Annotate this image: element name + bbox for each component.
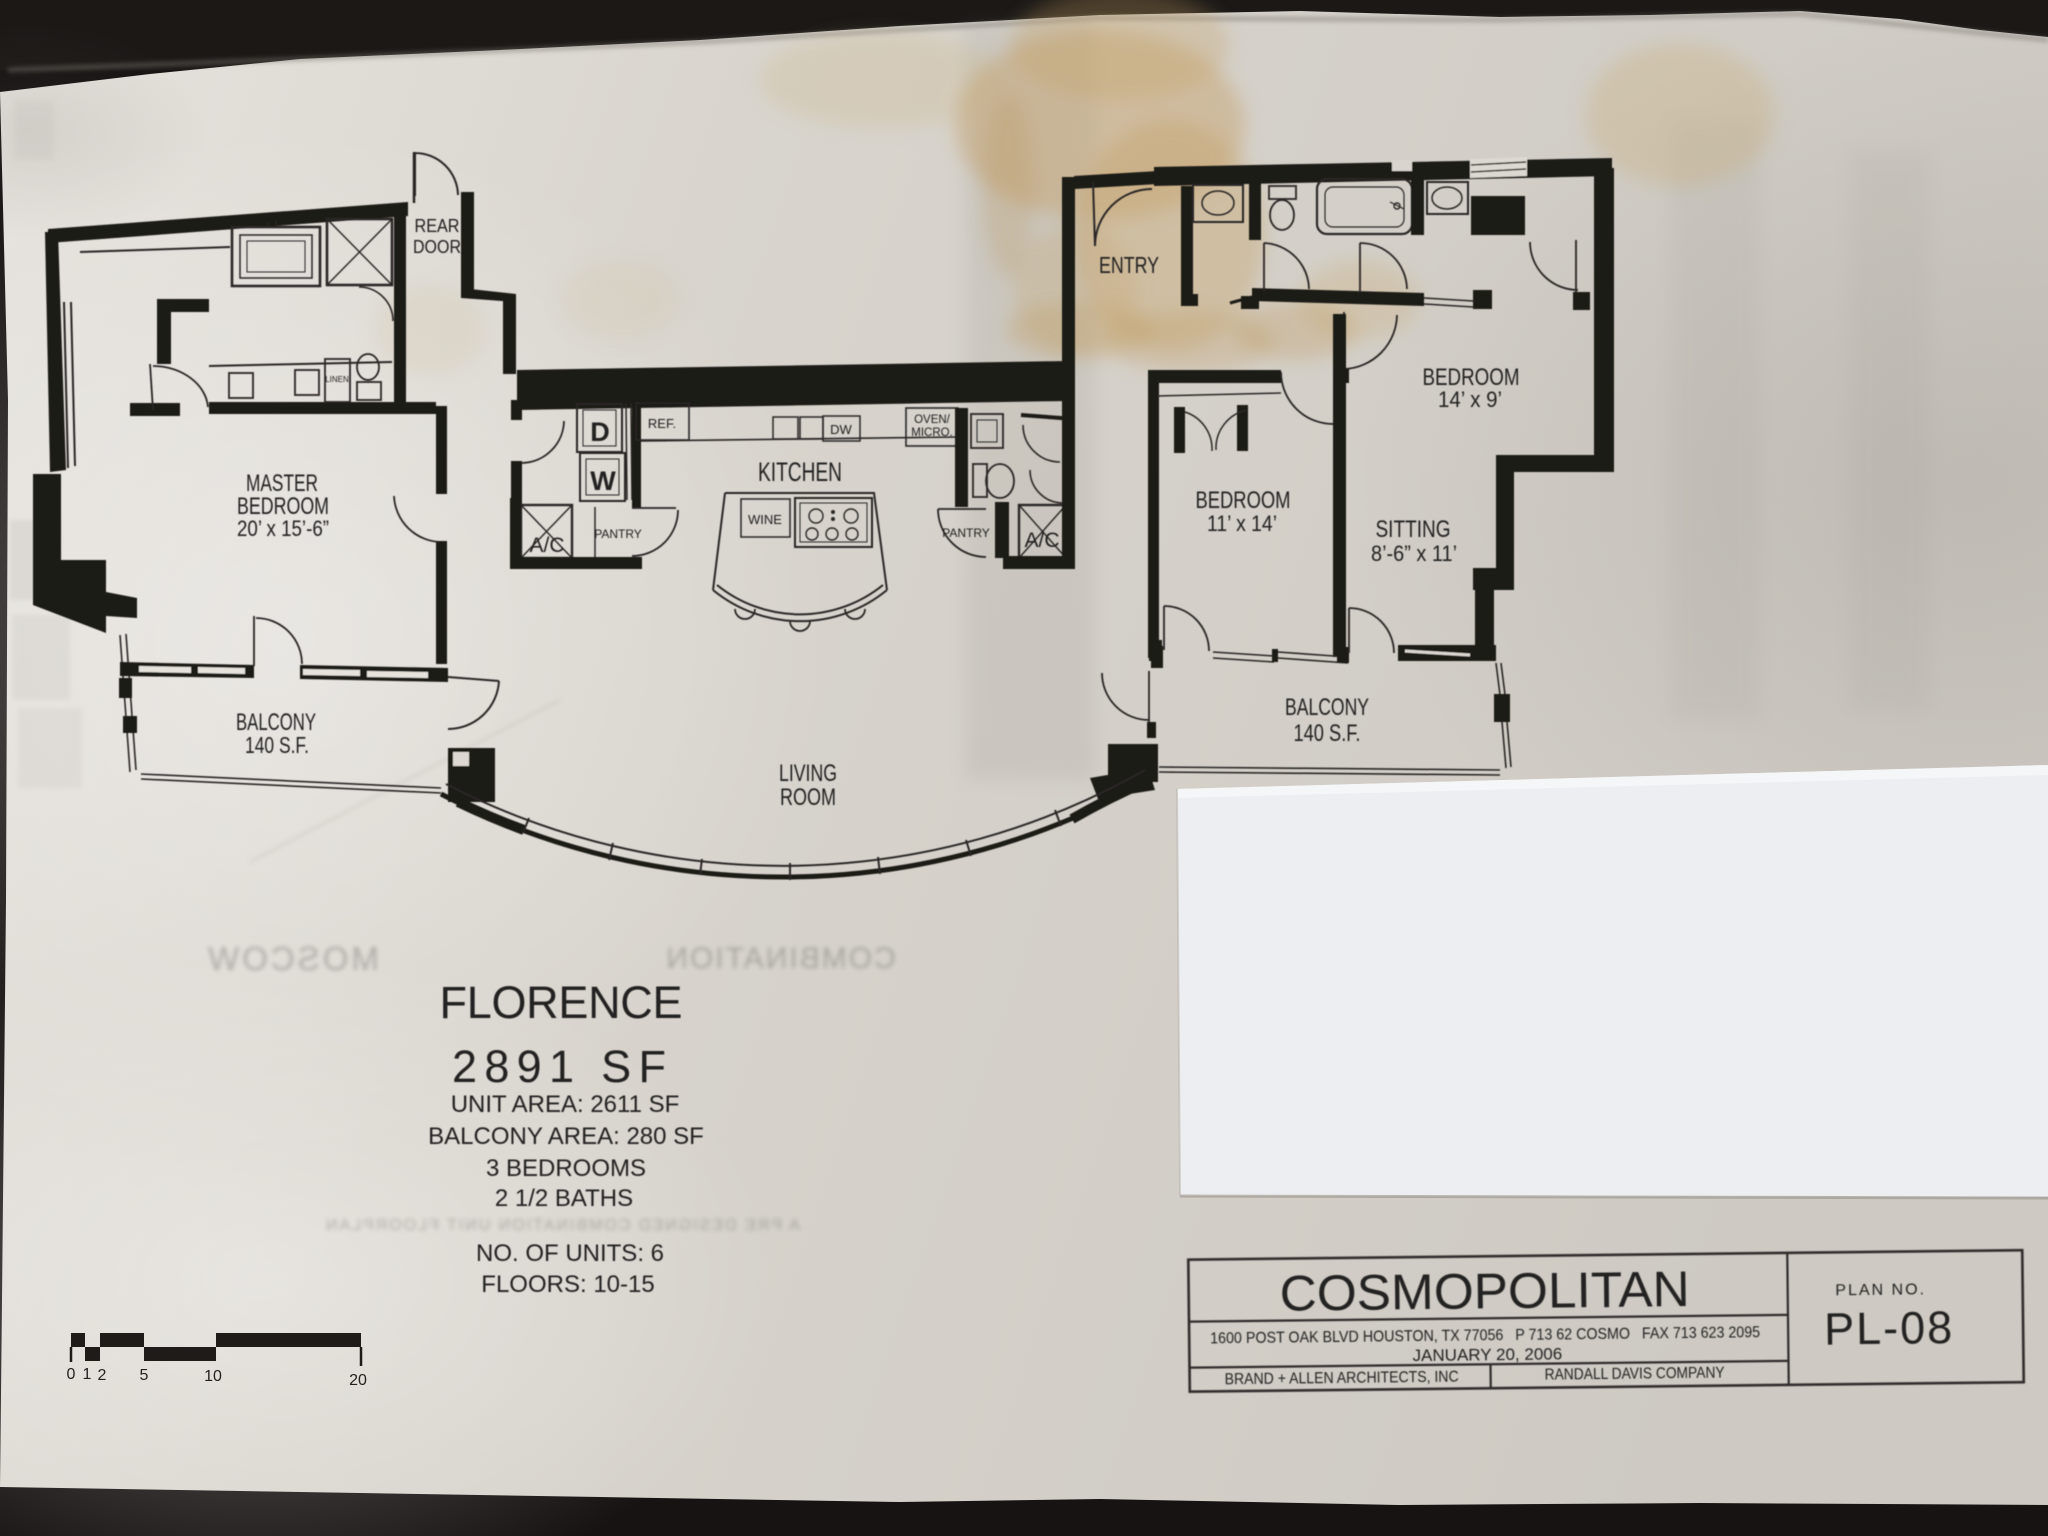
svg-text:ROOM: ROOM bbox=[780, 784, 836, 811]
svg-text:FLOORS: 10-15: FLOORS: 10-15 bbox=[481, 1271, 654, 1298]
svg-text:OVEN/: OVEN/ bbox=[914, 414, 951, 426]
svg-text:PANTRY: PANTRY bbox=[942, 526, 990, 540]
svg-text:2891 SF: 2891 SF bbox=[452, 1041, 674, 1092]
svg-text:REF.: REF. bbox=[648, 416, 676, 431]
svg-text:PL-08: PL-08 bbox=[1824, 1302, 1955, 1354]
svg-text:SITTING: SITTING bbox=[1376, 516, 1451, 543]
svg-text:0: 0 bbox=[67, 1366, 76, 1383]
svg-text:20’ x 15’-6”: 20’ x 15’-6” bbox=[237, 516, 329, 541]
svg-text:COSMOPOLITAN: COSMOPOLITAN bbox=[1279, 1261, 1690, 1322]
svg-text:BEDROOM: BEDROOM bbox=[1196, 487, 1291, 514]
svg-text:JANUARY 20, 2006: JANUARY 20, 2006 bbox=[1412, 1344, 1562, 1365]
svg-text:5: 5 bbox=[140, 1367, 149, 1384]
svg-text:RANDALL DAVIS COMPANY: RANDALL DAVIS COMPANY bbox=[1545, 1365, 1725, 1384]
svg-text:3 BEDROOMS: 3 BEDROOMS bbox=[486, 1155, 646, 1182]
svg-text:A/C: A/C bbox=[1024, 529, 1059, 552]
svg-text:BALCONY: BALCONY bbox=[1285, 694, 1369, 721]
svg-text:NO. OF UNITS: 6: NO. OF UNITS: 6 bbox=[476, 1240, 664, 1267]
svg-text:A PRE DESIGNED COMBINATION UNI: A PRE DESIGNED COMBINATION UNIT FLOORPLA… bbox=[324, 1217, 800, 1234]
svg-text:10: 10 bbox=[204, 1368, 222, 1385]
svg-text:BRAND + ALLEN ARCHITECTS, INC: BRAND + ALLEN ARCHITECTS, INC bbox=[1225, 1369, 1459, 1389]
svg-text:20: 20 bbox=[349, 1372, 367, 1389]
svg-text:MOSCOW: MOSCOW bbox=[205, 940, 379, 977]
svg-text:1: 1 bbox=[83, 1366, 92, 1383]
svg-text:2 1/2 BATHS: 2 1/2 BATHS bbox=[495, 1185, 633, 1212]
svg-text:REAR: REAR bbox=[415, 215, 460, 236]
svg-text:W: W bbox=[590, 466, 616, 496]
svg-text:BALCONY AREA: 280 SF: BALCONY AREA: 280 SF bbox=[428, 1123, 704, 1150]
svg-text:MICRO.: MICRO. bbox=[911, 427, 953, 439]
svg-text:8’-6” x 11’: 8’-6” x 11’ bbox=[1371, 541, 1457, 566]
svg-text:PLAN NO.: PLAN NO. bbox=[1835, 1281, 1926, 1299]
svg-text:KITCHEN: KITCHEN bbox=[758, 457, 842, 487]
svg-text:ENTRY: ENTRY bbox=[1099, 252, 1159, 278]
svg-text:11’ x 14’: 11’ x 14’ bbox=[1207, 511, 1277, 536]
svg-text:140 S.F.: 140 S.F. bbox=[245, 732, 309, 758]
svg-text:COMBINATION: COMBINATION bbox=[664, 942, 895, 975]
svg-text:140 S.F.: 140 S.F. bbox=[1294, 720, 1361, 747]
svg-text:LIVING: LIVING bbox=[779, 760, 837, 787]
svg-text:WINE: WINE bbox=[748, 512, 782, 527]
svg-text:FLORENCE: FLORENCE bbox=[440, 977, 687, 1028]
svg-text:A/C: A/C bbox=[529, 534, 564, 557]
svg-text:DOOR: DOOR bbox=[413, 236, 461, 257]
svg-text:UNIT AREA: 2611 SF: UNIT AREA: 2611 SF bbox=[451, 1091, 680, 1118]
svg-text:PANTRY: PANTRY bbox=[594, 527, 642, 541]
svg-text:D: D bbox=[590, 417, 610, 447]
svg-text:DW: DW bbox=[830, 422, 852, 437]
svg-text:2: 2 bbox=[98, 1367, 107, 1384]
svg-text:14’ x 9’: 14’ x 9’ bbox=[1438, 387, 1502, 412]
svg-text:LINEN: LINEN bbox=[325, 375, 349, 384]
